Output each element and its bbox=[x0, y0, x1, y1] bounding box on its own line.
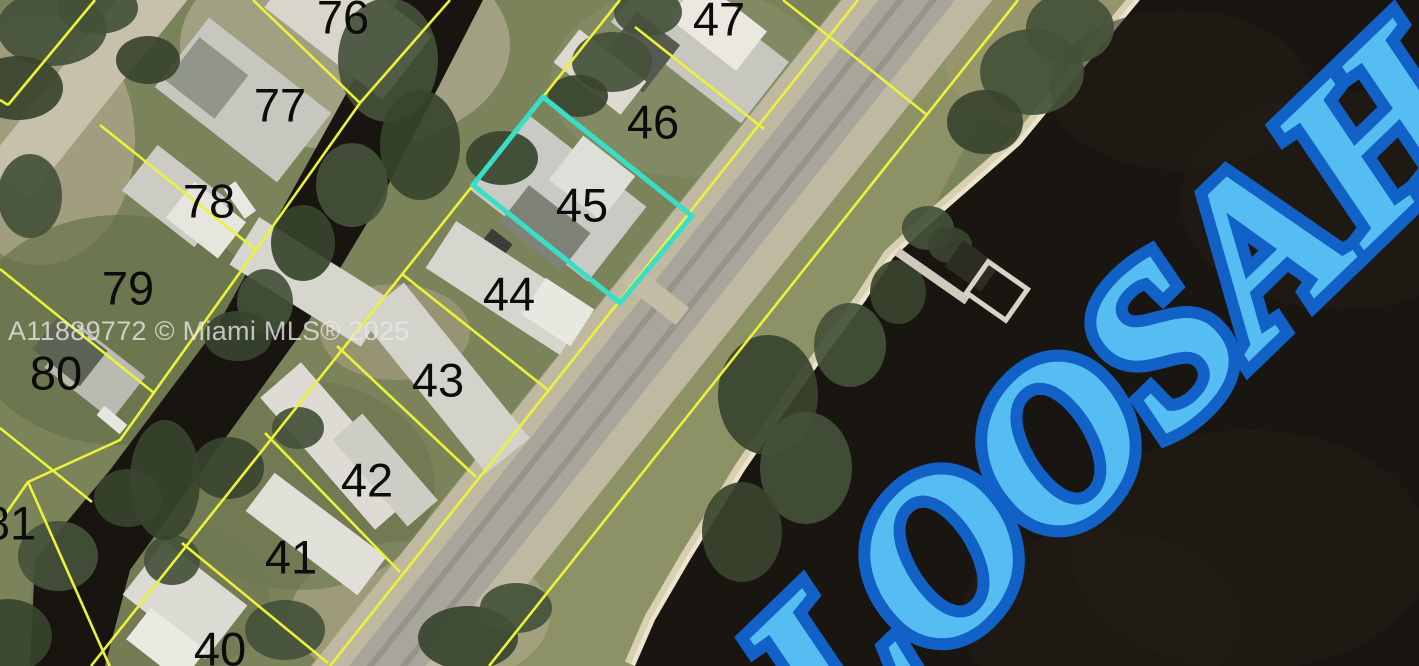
lot-label-43: 43 bbox=[412, 354, 464, 407]
lot-label-79: 79 bbox=[102, 262, 154, 315]
lot-label-47: 47 bbox=[693, 0, 745, 46]
tree-canopy bbox=[316, 143, 388, 227]
lot-label-44: 44 bbox=[483, 268, 535, 321]
lot-label-42: 42 bbox=[341, 454, 393, 507]
tree-canopy bbox=[702, 482, 782, 582]
lot-label-45: 45 bbox=[556, 179, 608, 232]
lot-label-40: 40 bbox=[194, 623, 246, 666]
lot-label-80: 80 bbox=[30, 347, 82, 400]
lot-label-41: 41 bbox=[265, 531, 317, 584]
aerial-parcel-map: 7677787980814746454443424140 A11889772 ©… bbox=[0, 0, 1419, 666]
tree-canopy bbox=[0, 154, 62, 238]
lot-label-76: 76 bbox=[317, 0, 369, 44]
lot-label-81: 81 bbox=[0, 497, 36, 550]
tree-canopy bbox=[947, 90, 1023, 154]
tree-canopy bbox=[116, 36, 180, 84]
satellite-map-svg: 7677787980814746454443424140 bbox=[0, 0, 1419, 666]
tree-canopy bbox=[814, 303, 886, 387]
tree-canopy bbox=[130, 420, 200, 540]
lot-label-78: 78 bbox=[183, 175, 235, 228]
tree-canopy bbox=[480, 583, 552, 633]
lot-label-77: 77 bbox=[254, 79, 306, 132]
tree-canopy bbox=[192, 437, 264, 499]
lot-label-46: 46 bbox=[627, 96, 679, 149]
tree-canopy bbox=[204, 311, 272, 361]
tree-canopy bbox=[144, 535, 200, 585]
tree-canopy bbox=[380, 90, 460, 200]
